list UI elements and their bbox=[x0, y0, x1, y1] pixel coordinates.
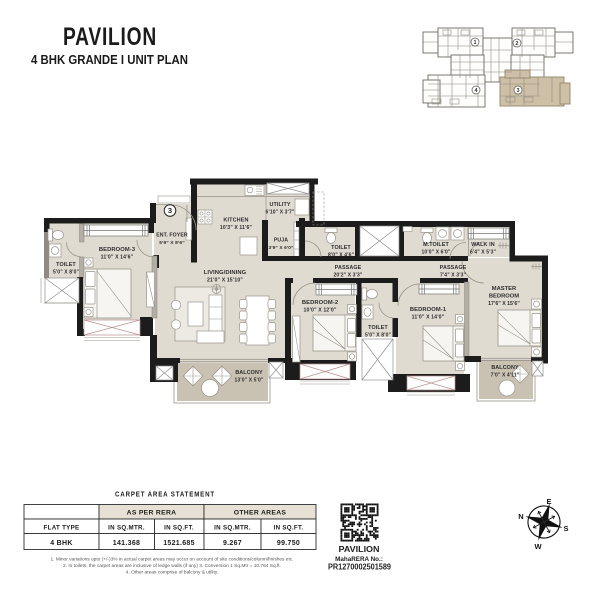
svg-text:S: S bbox=[563, 524, 568, 533]
svg-text:M.TOILET: M.TOILET bbox=[423, 242, 449, 248]
svg-text:5’0” X 8’0”: 5’0” X 8’0” bbox=[365, 333, 392, 339]
svg-text:IN SQ.FT.: IN SQ.FT. bbox=[274, 525, 304, 532]
svg-text:TOILET: TOILET bbox=[368, 325, 388, 331]
svg-text:PAVILION: PAVILION bbox=[339, 545, 380, 554]
svg-text:FLAT TYPE: FLAT TYPE bbox=[44, 525, 80, 532]
svg-text:BEDROOM-1: BEDROOM-1 bbox=[410, 307, 447, 313]
svg-text:99.750: 99.750 bbox=[277, 540, 300, 547]
svg-text:4 BHK GRANDE I UNIT PLAN: 4 BHK GRANDE I UNIT PLAN bbox=[31, 52, 188, 67]
svg-text:17’6” X 15’6”: 17’6” X 15’6” bbox=[488, 301, 520, 307]
svg-text:5’9” X 8’6”: 5’9” X 8’6” bbox=[159, 240, 185, 246]
svg-text:ENT. FOYER: ENT. FOYER bbox=[156, 233, 188, 239]
svg-text:IN SQ.MTR.: IN SQ.MTR. bbox=[108, 525, 145, 532]
svg-text:5’0” X 8’0”: 5’0” X 8’0” bbox=[53, 270, 80, 276]
svg-text:PAVILION: PAVILION bbox=[63, 23, 157, 51]
svg-text:IN SQ.FT.: IN SQ.FT. bbox=[164, 525, 194, 532]
svg-text:W: W bbox=[534, 542, 542, 551]
svg-text:WALK IN: WALK IN bbox=[471, 242, 494, 248]
svg-text:TOILET: TOILET bbox=[56, 262, 76, 268]
svg-text:10’3” X 11’6”: 10’3” X 11’6” bbox=[220, 225, 253, 231]
svg-text:13’0” X 5’0”: 13’0” X 5’0” bbox=[235, 378, 264, 384]
svg-text:PUJA: PUJA bbox=[274, 238, 288, 244]
svg-text:20’2” X 3’3”: 20’2” X 3’3” bbox=[334, 273, 363, 279]
svg-text:141.368: 141.368 bbox=[113, 540, 140, 547]
svg-text:3: 3 bbox=[168, 206, 172, 215]
svg-text:10’0” X 6’0”: 10’0” X 6’0” bbox=[422, 250, 451, 256]
svg-text:KITCHEN: KITCHEN bbox=[223, 218, 248, 224]
svg-text:PASSAGE: PASSAGE bbox=[440, 265, 467, 271]
svg-text:BALCONY: BALCONY bbox=[491, 365, 519, 371]
svg-text:21’0” X 15’10”: 21’0” X 15’10” bbox=[207, 278, 243, 284]
svg-text:1. Minor variations upto (+/-): 1. Minor variations upto (+/-)3% in actu… bbox=[50, 557, 293, 563]
svg-text:11’0” X 14’6”: 11’0” X 14’6” bbox=[101, 255, 134, 261]
svg-text:2: 2 bbox=[515, 41, 518, 47]
svg-text:PASSAGE: PASSAGE bbox=[335, 265, 362, 271]
svg-text:PR1270002501589: PR1270002501589 bbox=[328, 563, 392, 572]
svg-text:UTILITY: UTILITY bbox=[269, 202, 290, 208]
svg-text:CARPET AREA STATEMENT: CARPET AREA STATEMENT bbox=[115, 490, 215, 499]
svg-text:N: N bbox=[518, 512, 523, 521]
svg-text:9.267: 9.267 bbox=[223, 540, 242, 547]
svg-text:BALCONY: BALCONY bbox=[235, 370, 263, 376]
svg-text:11’0” X 14’0”: 11’0” X 14’0” bbox=[412, 315, 445, 321]
svg-text:BEDROOM-3: BEDROOM-3 bbox=[99, 247, 136, 253]
svg-text:6’4” X 5’3”: 6’4” X 5’3” bbox=[470, 250, 497, 256]
svg-text:TOILET: TOILET bbox=[331, 245, 351, 251]
svg-text:7’4” X 3’3”: 7’4” X 3’3” bbox=[440, 273, 467, 279]
svg-text:3: 3 bbox=[516, 88, 519, 94]
svg-text:E: E bbox=[546, 497, 551, 506]
svg-text:4. Other areas comprise of bal: 4. Other areas comprise of balcony & uti… bbox=[126, 570, 218, 576]
svg-text:10’0” X 12’0”: 10’0” X 12’0” bbox=[303, 308, 336, 314]
svg-text:IN SQ.MTR.: IN SQ.MTR. bbox=[214, 525, 251, 532]
svg-text:2. In toilets, the carpet area: 2. In toilets, the carpet areas are incl… bbox=[63, 563, 281, 569]
svg-text:3’9” X 6’0”: 3’9” X 6’0” bbox=[268, 245, 294, 251]
svg-text:MASTER: MASTER bbox=[492, 286, 517, 292]
svg-text:6’10” X 3’7”: 6’10” X 3’7” bbox=[266, 210, 295, 216]
svg-text:1521.685: 1521.685 bbox=[163, 540, 195, 547]
svg-text:BEDROOM: BEDROOM bbox=[489, 294, 519, 300]
svg-text:LIVING/DINING: LIVING/DINING bbox=[204, 270, 247, 276]
svg-text:8’0” X 4’6”: 8’0” X 4’6” bbox=[328, 253, 355, 259]
svg-text:BEDROOM-2: BEDROOM-2 bbox=[302, 300, 338, 306]
svg-text:OTHER AREAS: OTHER AREAS bbox=[234, 510, 287, 517]
svg-text:AS PER RERA: AS PER RERA bbox=[127, 510, 177, 517]
svg-text:7’0” X 4’11”: 7’0” X 4’11” bbox=[491, 373, 520, 379]
svg-text:4 BHK: 4 BHK bbox=[50, 540, 73, 547]
svg-text:1: 1 bbox=[473, 40, 476, 46]
